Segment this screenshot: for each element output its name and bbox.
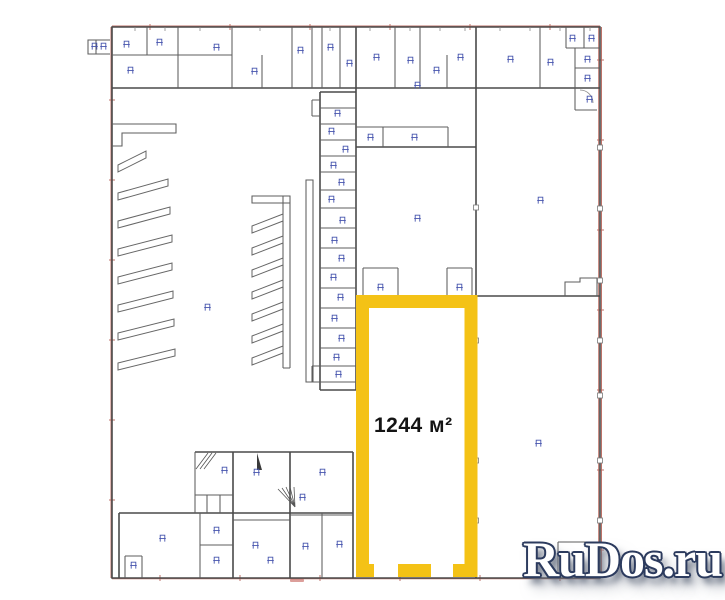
- fixture-icon: [333, 354, 340, 360]
- fixture-icon: [100, 43, 107, 49]
- fixture-icon: [338, 179, 345, 185]
- fixture-icon: [330, 162, 337, 168]
- watermark-rudos: RuDos.ru: [523, 534, 722, 584]
- fixture-icon: [456, 284, 463, 290]
- fixture-icon: [253, 469, 260, 475]
- fixture-icon: [334, 110, 341, 116]
- fixture-icon: [331, 315, 338, 321]
- fixture-icon: [330, 274, 337, 280]
- fixture-icon: [537, 197, 544, 203]
- fixture-icon: [338, 335, 345, 341]
- fixture-icon: [338, 255, 345, 261]
- fixture-icon: [252, 542, 259, 548]
- bottom-room-cluster: [119, 452, 353, 578]
- fixture-icon: [457, 54, 464, 60]
- fixture-icon: [299, 494, 306, 500]
- fixture-icon: [127, 67, 134, 73]
- fixture-icon: [377, 284, 384, 290]
- fixture-icon: [337, 294, 344, 300]
- fixture-icon: [297, 47, 304, 53]
- fixture-icon: [213, 557, 220, 563]
- fixture-icon: [507, 56, 514, 62]
- fixture-icon: [414, 215, 421, 221]
- fixture-icon: [339, 217, 346, 223]
- stair-wedge: [257, 453, 262, 470]
- fixture-icon: [584, 56, 591, 62]
- plumbing-fixture-icons: [91, 35, 595, 568]
- fixture-icon: [123, 41, 130, 47]
- fixture-icon: [319, 469, 326, 475]
- fixture-icon: [156, 39, 163, 45]
- fixture-icon: [328, 196, 335, 202]
- center-room-strip: [312, 27, 356, 390]
- left-rack-area: [112, 124, 313, 382]
- fixture-icon: [328, 128, 335, 134]
- outer-walls: [88, 27, 600, 578]
- fixture-icon: [373, 54, 380, 60]
- fixture-icon: [213, 44, 220, 50]
- fixture-icon: [159, 535, 166, 541]
- fixture-icon: [267, 557, 274, 563]
- fixture-icon: [91, 43, 98, 49]
- fixture-icon: [221, 467, 228, 473]
- fixture-icon: [213, 527, 220, 533]
- fixture-icon: [547, 59, 554, 65]
- fixture-icon: [569, 35, 576, 41]
- fixture-icon: [331, 237, 338, 243]
- fixture-icon: [204, 304, 211, 310]
- fixture-icon: [407, 57, 414, 63]
- fixture-icon: [588, 35, 595, 41]
- fixture-icon: [411, 134, 418, 140]
- fixture-icon: [584, 75, 591, 81]
- fixture-icon: [302, 543, 309, 549]
- fixture-icon: [346, 60, 353, 66]
- floor-plan-drawing: [0, 0, 725, 600]
- caption-mark: [290, 579, 304, 582]
- fixture-icon: [251, 68, 258, 74]
- fixture-icon: [586, 96, 593, 102]
- fixture-icon: [130, 562, 137, 568]
- floor-plan-page: 1244 м² RuDos.ru: [0, 0, 725, 600]
- fixture-icon: [336, 541, 343, 547]
- fixture-icon: [327, 44, 334, 50]
- fixture-icon: [535, 440, 542, 446]
- fixture-icon: [433, 67, 440, 73]
- fixture-icon: [367, 134, 374, 140]
- fixture-icon: [335, 371, 342, 377]
- highlight-area-label: 1244 м²: [374, 414, 464, 438]
- fixture-icon: [342, 146, 349, 152]
